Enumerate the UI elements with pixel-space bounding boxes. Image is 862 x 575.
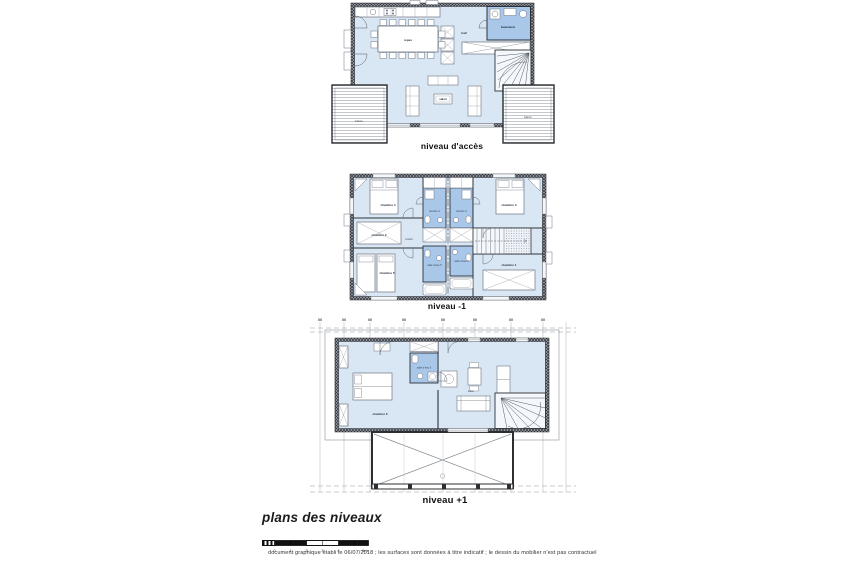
niveau-acces-drawing: repas salon hall buanderie balcon balcon (322, 0, 562, 152)
room-label-douche4: douche 4 (429, 209, 440, 213)
terrace-left (332, 85, 387, 143)
lower-deck (372, 432, 513, 489)
room-label-chambre6: chambre 6 (372, 412, 387, 416)
staircase (495, 393, 546, 429)
room-label-chambre3: chambre 3 (501, 203, 516, 207)
room-label-salle-eau1: salle d'eau 1 (454, 259, 469, 263)
document-disclaimer: document graphique établi le 06/07/2018 … (268, 550, 597, 556)
scale-bar-hatch-block (263, 541, 275, 546)
floor-plans-document: repas salon hall buanderie balcon balcon… (0, 0, 862, 575)
niveau-moins-1-drawing: chambre 4 douche 4 douche 3 chambre 3 ch… (343, 170, 553, 310)
floor-plan-niveau-moins-1: chambre 4 douche 4 douche 3 chambre 3 ch… (343, 170, 553, 315)
level-label-moins-1: niveau -1 (428, 301, 466, 311)
room-label-chambre4: chambre 4 (380, 203, 395, 207)
room-label-chambre2: chambre 2 (371, 233, 386, 237)
niveau-plus-1-drawing: chambre 6 salle d'eau 6 salon (308, 316, 578, 508)
room-label-salon: salon (439, 97, 447, 101)
buanderie-room (487, 7, 531, 41)
terrace-right (503, 85, 554, 143)
room-label-hall: hall (461, 31, 466, 35)
room-label-balcon-right: balcon (524, 115, 532, 119)
room-label-buanderie: buanderie (501, 25, 516, 29)
document-title: plans des niveaux (262, 510, 382, 525)
level-label-plus-1: niveau +1 (423, 495, 468, 506)
room-label-salle-eau6: salle d'eau 6 (417, 366, 432, 370)
kitchen-counter (355, 7, 440, 17)
room-label-couloir: couloir (405, 237, 413, 241)
salle-eau-6 (410, 342, 438, 384)
floor-plan-niveau-acces: repas salon hall buanderie balcon balcon (322, 0, 562, 157)
level-label-acces: niveau d'accès (421, 141, 483, 151)
room-label-repas: repas (404, 38, 412, 42)
room-label-chambre1: chambre 1 (501, 263, 516, 267)
staircase (473, 228, 531, 254)
room-label-balcon-left: balcon (355, 119, 363, 123)
window-openings (382, 124, 494, 128)
room-label-salle-eau5: salle d'eau 5 (427, 263, 442, 267)
scale-bar-segments (263, 541, 369, 546)
grid-dimension-ticks (318, 319, 545, 322)
room-label-chambre5: chambre 5 (379, 271, 394, 275)
shower-unit (441, 371, 457, 387)
room-label-salon: salon (468, 389, 475, 393)
floor-plan-niveau-plus-1: chambre 6 salle d'eau 6 salon (308, 316, 578, 513)
room-label-douche3: douche 3 (456, 209, 467, 213)
